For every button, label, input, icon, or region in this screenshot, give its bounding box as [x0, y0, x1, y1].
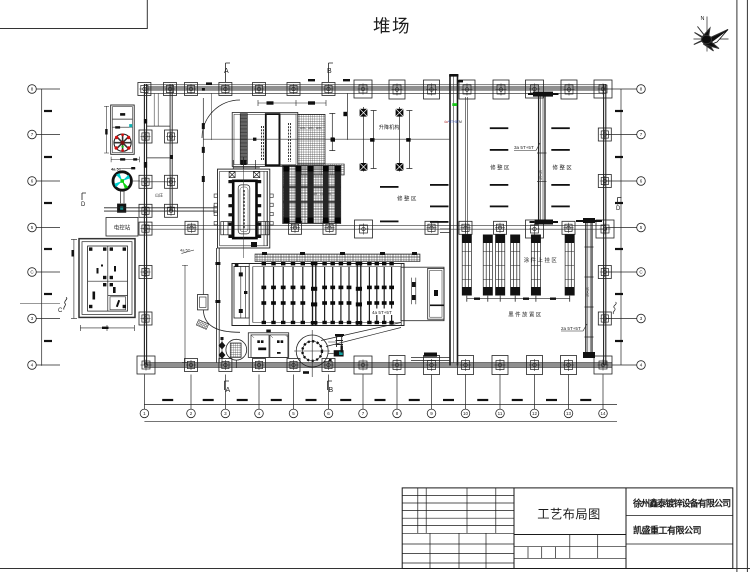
svg-text:B: B [327, 68, 332, 75]
svg-text:4a 5T: 4a 5T [180, 248, 191, 253]
svg-text:A: A [224, 68, 229, 75]
svg-text:A: A [226, 387, 231, 394]
svg-text:修整区: 修整区 [490, 164, 511, 172]
svg-text:13: 13 [566, 411, 572, 416]
svg-text:10: 10 [463, 411, 469, 416]
svg-text:B: B [329, 387, 334, 394]
svg-text:黑件放置区: 黑件放置区 [508, 310, 542, 318]
svg-text:CL: CL [328, 192, 332, 196]
svg-text:11: 11 [498, 411, 503, 416]
svg-text:C: C [58, 308, 63, 314]
svg-text:凯盛重工有限公司: 凯盛重工有限公司 [633, 525, 702, 536]
svg-text:4a*5T+5TM: 4a*5T+5TM [444, 120, 462, 124]
svg-text:HCL: HCL [316, 126, 322, 130]
svg-text:修整区: 修整区 [553, 164, 574, 172]
svg-text:涂件上挂区: 涂件上挂区 [524, 256, 558, 264]
svg-text:3a 5T+5T: 3a 5T+5T [514, 145, 534, 150]
svg-text:徐州鑫泰镀锌设备有限公司: 徐州鑫泰镀锌设备有限公司 [632, 498, 731, 509]
svg-text:D: D [81, 202, 86, 208]
svg-text:LH: LH [320, 192, 324, 196]
svg-text:HCL: HCL [308, 126, 314, 130]
svg-text:14: 14 [600, 411, 606, 416]
svg-text:4a 5T+5T: 4a 5T+5T [372, 310, 392, 315]
svg-text:5T+5T: 5T+5T [538, 170, 542, 180]
svg-text:修整区: 修整区 [397, 195, 418, 203]
svg-text:升降机构: 升降机构 [379, 123, 400, 131]
svg-text:2a 5T+5T: 2a 5T+5T [561, 326, 581, 331]
svg-text:N: N [701, 16, 705, 22]
svg-text:工艺布局图: 工艺布局图 [537, 507, 601, 521]
svg-text:堆场: 堆场 [373, 16, 411, 36]
svg-text:5T+5T: 5T+5T [585, 287, 589, 297]
svg-text:电控站: 电控站 [114, 224, 131, 232]
svg-text:HCL: HCL [300, 126, 306, 130]
svg-text:山庄: 山庄 [155, 192, 163, 198]
svg-text:D: D [616, 206, 621, 212]
svg-text:12: 12 [532, 411, 538, 416]
